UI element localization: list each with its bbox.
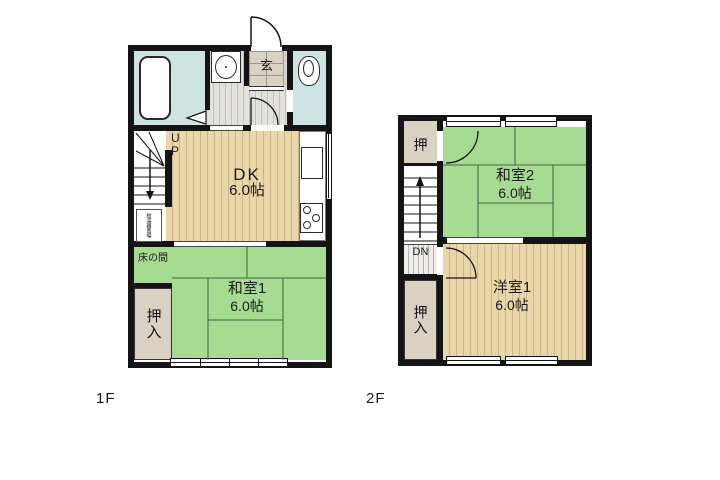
dk-side-window-line bbox=[328, 134, 329, 198]
oshi-2f-label: 押 bbox=[414, 135, 428, 155]
plan-linework bbox=[0, 0, 720, 480]
genkan-step bbox=[249, 86, 284, 91]
stove-burner-1-icon bbox=[303, 206, 311, 214]
wall-bath-right bbox=[205, 51, 210, 110]
washitsu1-room-size: 6.0帖 bbox=[197, 299, 297, 315]
washitsu2-room-size: 6.0帖 bbox=[465, 186, 565, 202]
youshitsu1-window-1-line bbox=[447, 360, 500, 361]
utility-label: 給湯器置場 bbox=[146, 213, 153, 238]
up-label: UP bbox=[171, 132, 185, 159]
youshitsu1-room-size: 6.0帖 bbox=[462, 298, 562, 314]
entrance-door-arc bbox=[251, 17, 281, 47]
washitsu1-room-name: 和室1 bbox=[197, 281, 297, 298]
washitsu2-window-1-line bbox=[447, 121, 500, 122]
oshiire-1f-label-wrap: 押入 bbox=[134, 288, 172, 360]
youshitsu1-room-name: 洋室1 bbox=[462, 280, 562, 297]
wall-toilet-left bbox=[287, 51, 293, 125]
oshiire-1f-label: 押入 bbox=[143, 308, 164, 340]
floor1-tag: 1F bbox=[96, 391, 136, 408]
washbasin-drain bbox=[225, 66, 227, 68]
bathtub-icon bbox=[139, 56, 171, 120]
washitsu1-window-div2 bbox=[229, 359, 230, 366]
genkan-label: 玄 bbox=[249, 59, 284, 74]
oshi-2f-label-wrap: 押 bbox=[404, 124, 437, 166]
washitsu1-window-div1 bbox=[200, 359, 201, 366]
oshiire-2f-label-wrap: 押入 bbox=[404, 280, 437, 360]
dk-room-size: 6.0帖 bbox=[197, 183, 297, 200]
kitchen-sink-icon bbox=[301, 147, 323, 179]
toilet-bowl-icon bbox=[303, 60, 314, 77]
dk-washitsu1-sliding-door bbox=[174, 241, 266, 247]
youshitsu1-window-2-line bbox=[506, 360, 557, 361]
washitsu2-sliding-door bbox=[447, 237, 523, 244]
utility-box: 給湯器置場 bbox=[136, 209, 162, 242]
floor2-tag: 2F bbox=[366, 391, 406, 408]
floorplan-canvas: 玄 給湯器置場 UP DK 6.0帖 床の間 押入 和室1 6 bbox=[0, 0, 720, 480]
stove-burner-3-icon bbox=[303, 221, 311, 229]
dn-label: DN bbox=[404, 246, 437, 258]
oshiire-2f-label: 押入 bbox=[411, 305, 431, 335]
washitsu2-room-name: 和室2 bbox=[465, 168, 565, 185]
hall-door-opening bbox=[251, 125, 284, 131]
washitsu2-window-2-line bbox=[506, 121, 556, 122]
stove-burner-2-icon bbox=[312, 214, 320, 222]
dk-side-window bbox=[326, 133, 332, 200]
tokonoma-label: 床の間 bbox=[136, 253, 170, 264]
washroom-sliding-door bbox=[210, 125, 243, 131]
washitsu1-window-div3 bbox=[258, 359, 259, 366]
youshitsu1-door-opening bbox=[437, 247, 443, 275]
washitsu2-door-opening bbox=[437, 131, 443, 161]
toilet-door-opening bbox=[287, 90, 293, 112]
